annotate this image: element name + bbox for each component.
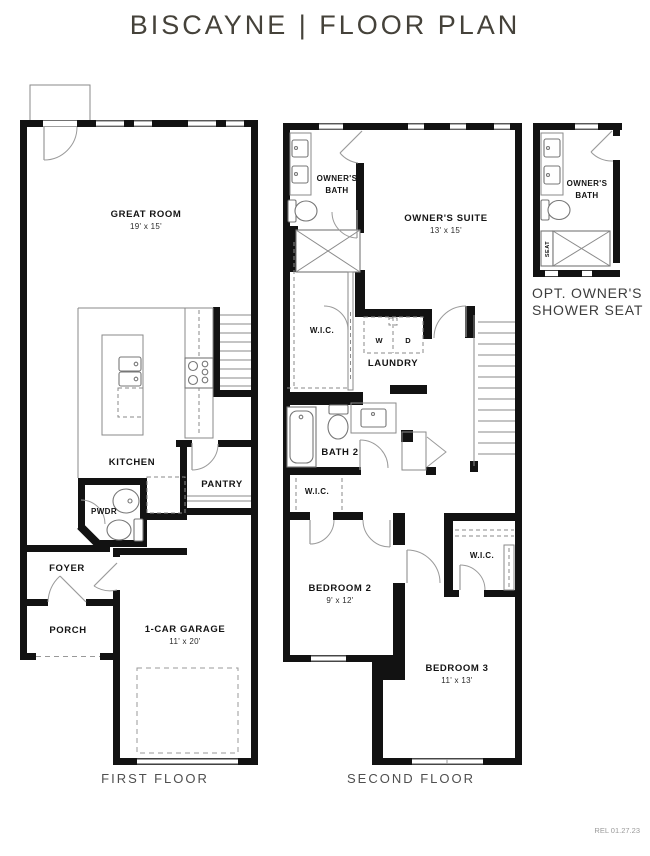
wall xyxy=(283,123,522,130)
door-arc xyxy=(363,520,390,547)
dims-bedroom3: 11' x 13' xyxy=(441,676,473,685)
dryer-label: D xyxy=(405,336,411,345)
owners-bath-fixtures xyxy=(288,131,362,272)
wall xyxy=(180,508,258,515)
car-space xyxy=(137,668,238,753)
wall-break xyxy=(582,271,592,276)
wall xyxy=(390,385,427,394)
label-detail-bath-1: OWNER'S xyxy=(567,179,608,188)
option-caption-line1: OPT. OWNER'S xyxy=(532,285,642,301)
door-leaf xyxy=(340,131,362,153)
wall xyxy=(283,512,310,520)
dishwasher xyxy=(118,388,143,417)
door-arc xyxy=(591,152,613,161)
refrigerator xyxy=(147,477,185,513)
wall xyxy=(484,590,515,597)
floor-plan-page: BISCAYNE | FLOOR PLAN xyxy=(0,0,650,856)
option-shower-seat-detail: SEAT OWNER'S BATH OPT. OWNER'S SHOWER SE… xyxy=(532,123,643,318)
label-owners-bath-2: BATH xyxy=(325,186,348,195)
release-note: REL 01.27.23 xyxy=(594,826,640,835)
toilet-bowl xyxy=(295,201,317,221)
door-leaf xyxy=(591,131,612,152)
entry-stoop xyxy=(30,85,90,123)
floor-plan-drawing: GREAT ROOM 19' x 15' KITCHEN PANTRY PWDR… xyxy=(0,0,650,856)
door-arc xyxy=(434,306,466,338)
door-arc xyxy=(360,440,388,468)
closet-door xyxy=(427,437,446,467)
wall-break xyxy=(545,271,558,276)
label-owners-suite: OWNER'S SUITE xyxy=(404,213,487,224)
toilet-tank xyxy=(134,519,143,541)
bath2-fixtures xyxy=(287,403,446,470)
label-detail-bath-2: BATH xyxy=(575,191,598,200)
wall xyxy=(515,123,522,765)
wall xyxy=(533,123,540,277)
label-wic3: W.I.C. xyxy=(470,551,494,560)
label-wic2: W.I.C. xyxy=(305,487,329,496)
wic3-detail xyxy=(455,530,514,590)
wall xyxy=(20,120,27,660)
wall xyxy=(423,309,432,339)
option-caption-line2: SHOWER SEAT xyxy=(532,302,643,318)
wall xyxy=(20,545,110,552)
wall xyxy=(100,653,117,660)
entry-door xyxy=(43,121,77,160)
label-foyer: FOYER xyxy=(49,563,85,574)
label-wic1: W.I.C. xyxy=(310,326,334,335)
wall xyxy=(140,513,187,520)
first-floor-caption: FIRST FLOOR xyxy=(101,771,209,786)
dims-owners-suite: 13' x 15' xyxy=(430,226,462,235)
label-pantry: PANTRY xyxy=(201,479,243,490)
wall xyxy=(393,513,405,545)
sink-basin xyxy=(361,409,386,427)
label-bedroom2: BEDROOM 2 xyxy=(309,583,372,594)
washer-label: W xyxy=(375,336,383,345)
label-laundry: LAUNDRY xyxy=(368,358,418,369)
door-arc xyxy=(44,127,77,160)
wall xyxy=(613,130,620,136)
label-porch: PORCH xyxy=(49,625,86,636)
door-leaf xyxy=(60,576,86,602)
laundry-detail: W D xyxy=(364,317,423,353)
wall xyxy=(78,478,85,528)
label-owners-bath-1: OWNER'S xyxy=(317,174,358,183)
wall xyxy=(218,440,258,447)
door-opening xyxy=(113,557,120,590)
wall xyxy=(20,653,36,660)
dims-great-room: 19' x 15' xyxy=(130,222,162,231)
label-powder: PWDR xyxy=(91,507,117,516)
door-arc xyxy=(460,565,485,590)
door-arc xyxy=(310,520,334,544)
wall xyxy=(213,390,258,397)
wall xyxy=(333,512,363,520)
toilet-bowl xyxy=(328,415,348,439)
angled-wall xyxy=(80,526,102,548)
wall xyxy=(444,521,453,597)
wall xyxy=(20,599,48,606)
wall xyxy=(372,655,383,765)
wall xyxy=(613,160,620,263)
wall xyxy=(393,583,405,663)
dims-bedroom2: 9' x 12' xyxy=(326,596,353,605)
door-opening xyxy=(43,121,77,127)
first-floor-plan: GREAT ROOM 19' x 15' KITCHEN PANTRY PWDR… xyxy=(20,85,258,786)
label-bedroom3: BEDROOM 3 xyxy=(426,663,489,674)
toilet-bowl xyxy=(548,201,570,220)
toilet-tank xyxy=(329,405,348,414)
wall xyxy=(362,309,427,317)
wall xyxy=(86,599,117,606)
door-arc xyxy=(407,550,440,583)
pantry-detail xyxy=(187,443,251,501)
wall xyxy=(283,467,361,475)
second-floor-plan: W D xyxy=(283,123,522,786)
wall xyxy=(213,307,220,397)
dims-garage: 11' x 20' xyxy=(169,637,201,646)
door-arc xyxy=(340,153,358,163)
door-arc xyxy=(192,444,218,470)
thin-wall xyxy=(348,272,353,390)
first-floor-stairs xyxy=(220,315,251,386)
cooktop xyxy=(185,358,213,388)
door-arc xyxy=(48,576,60,602)
label-kitchen: KITCHEN xyxy=(109,457,155,468)
wall xyxy=(444,513,515,521)
label-seat: SEAT xyxy=(545,241,551,257)
label-bath2: BATH 2 xyxy=(321,447,358,458)
wall xyxy=(78,478,147,485)
label-garage: 1-CAR GARAGE xyxy=(145,624,226,635)
toilet-bowl xyxy=(107,520,131,540)
second-floor-caption: SECOND FLOOR xyxy=(347,771,475,786)
label-great-room: GREAT ROOM xyxy=(111,209,182,220)
second-floor-stairs xyxy=(474,315,515,466)
wall xyxy=(426,467,436,475)
wall xyxy=(120,548,187,555)
wall xyxy=(444,590,459,597)
